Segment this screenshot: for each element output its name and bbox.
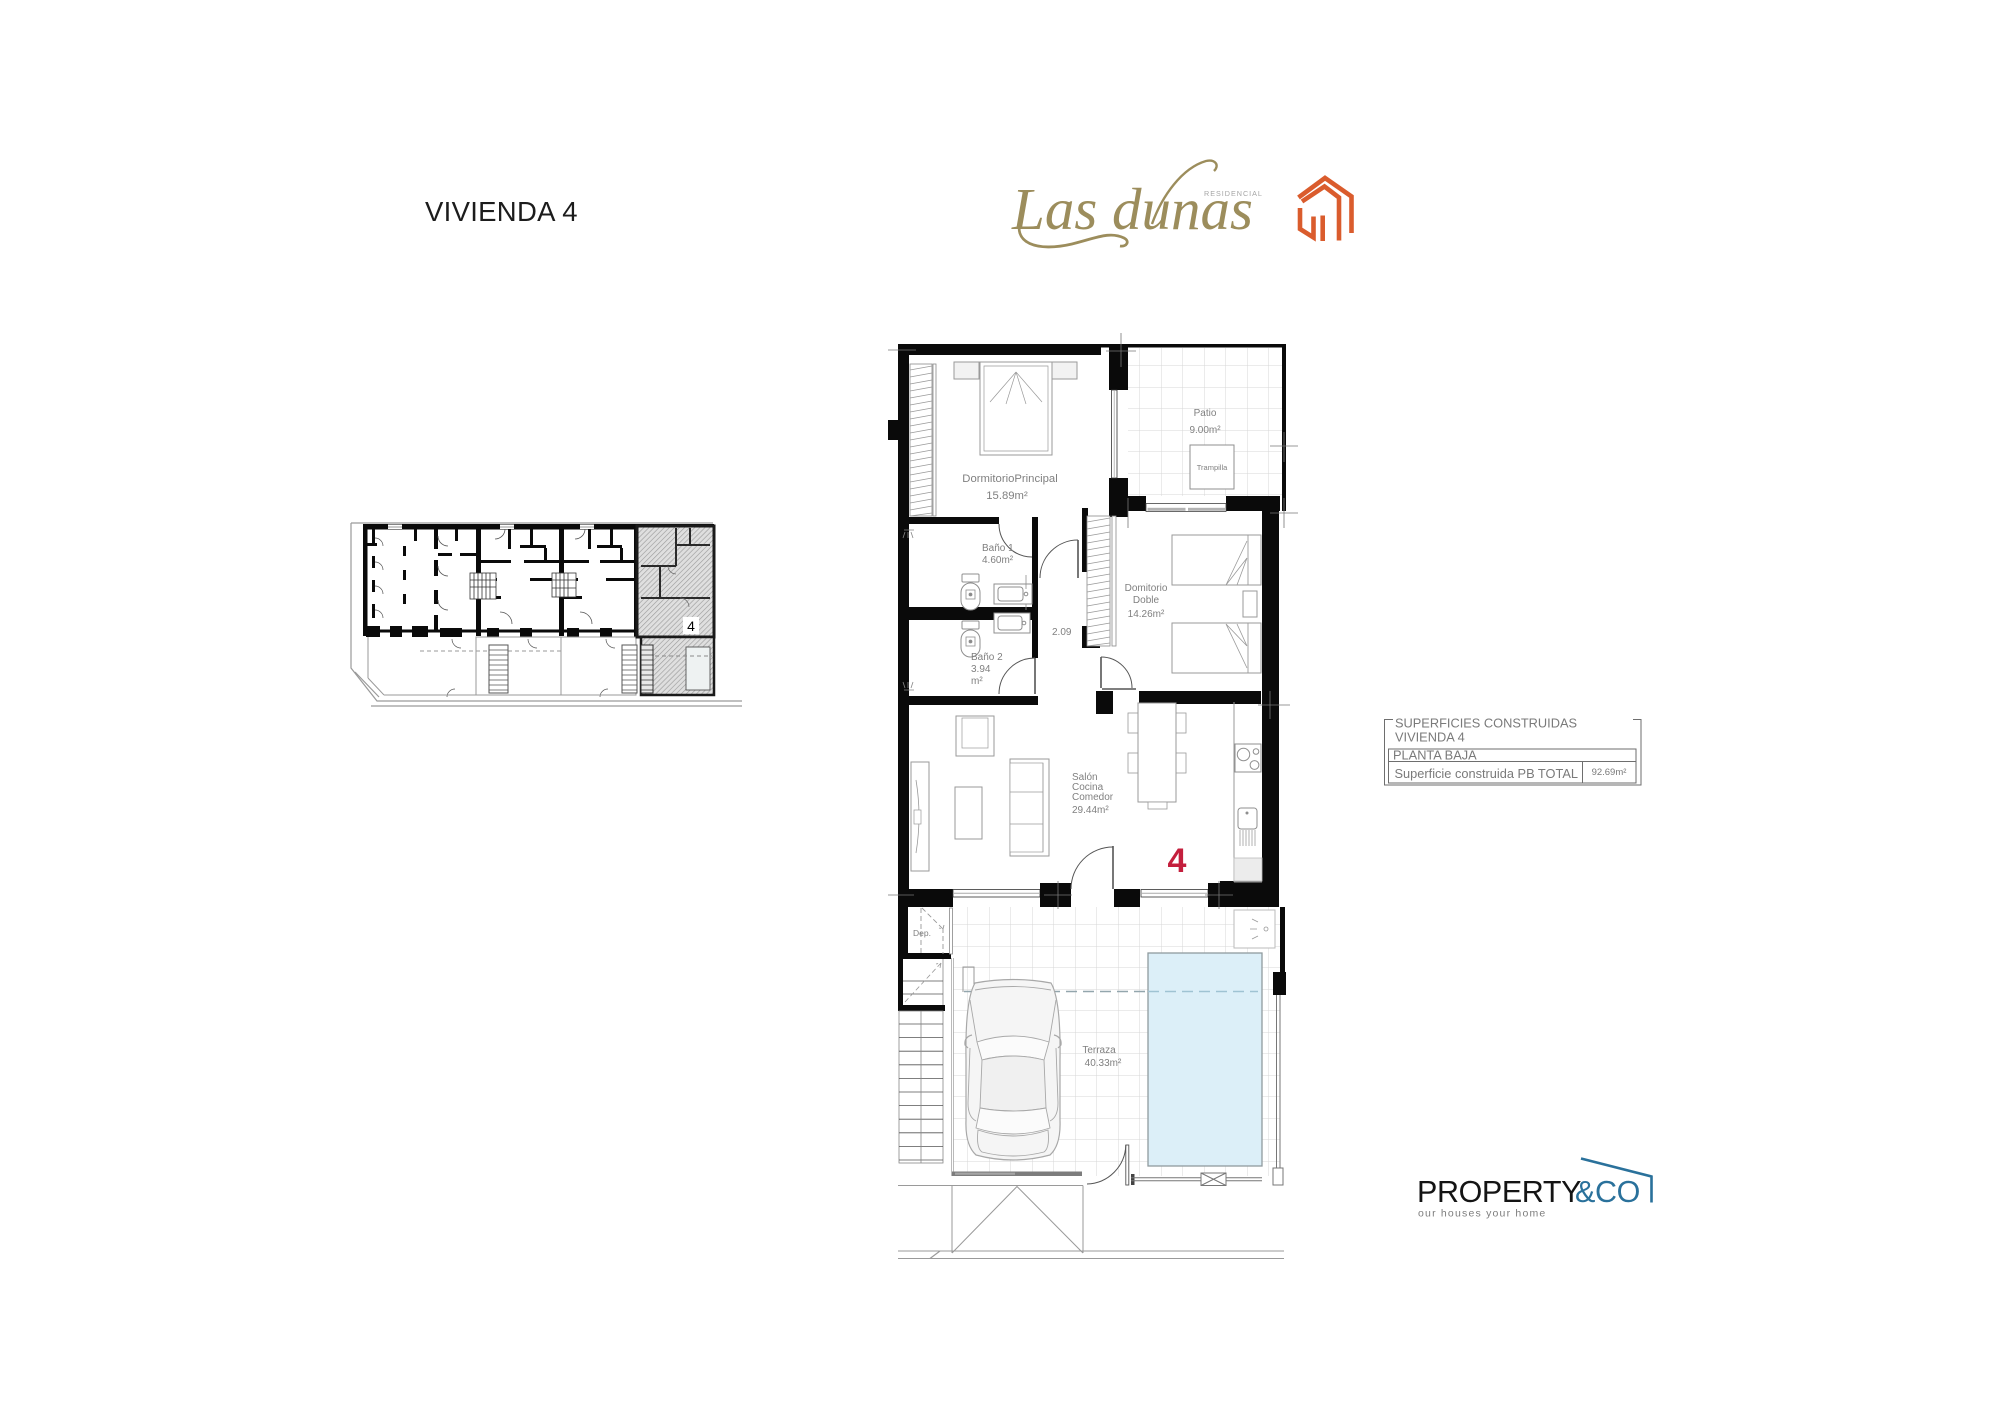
svg-text:Trampilla: Trampilla — [1197, 463, 1228, 472]
svg-text:SUPERFICIES CONSTRUIDAS: SUPERFICIES CONSTRUIDAS — [1395, 716, 1577, 731]
svg-text:PLANTA BAJA: PLANTA BAJA — [1393, 748, 1477, 763]
svg-text:Baño 1: Baño 1 — [982, 543, 1014, 554]
svg-text:VIVIENDA 4: VIVIENDA 4 — [425, 196, 578, 227]
svg-text:Doble: Doble — [1133, 595, 1160, 606]
svg-text:29.44m²: 29.44m² — [1072, 805, 1109, 816]
svg-text:4.60m²: 4.60m² — [982, 555, 1014, 566]
svg-text:4: 4 — [1168, 842, 1187, 880]
svg-text:m²: m² — [971, 676, 983, 687]
svg-text:9.00m²: 9.00m² — [1189, 425, 1221, 436]
svg-text:our houses your home: our houses your home — [1418, 1208, 1546, 1220]
svg-text:92.69m²: 92.69m² — [1592, 767, 1627, 778]
svg-text:&CO: &CO — [1575, 1175, 1640, 1209]
svg-text:Domitorio: Domitorio — [1125, 583, 1168, 594]
svg-text:PROPERTY: PROPERTY — [1417, 1175, 1581, 1209]
svg-text:15.89m²: 15.89m² — [986, 490, 1028, 502]
svg-text:VIVIENDA 4: VIVIENDA 4 — [1395, 730, 1465, 745]
svg-text:3.94: 3.94 — [971, 664, 991, 675]
svg-text:Baño 2: Baño 2 — [971, 652, 1003, 663]
svg-text:Superficie construida PB TOTAL: Superficie construida PB TOTAL — [1394, 766, 1578, 781]
svg-text:40.33m²: 40.33m² — [1085, 1058, 1122, 1069]
svg-text:Terraza: Terraza — [1082, 1045, 1116, 1056]
svg-text:Comedor: Comedor — [1072, 792, 1114, 803]
svg-text:Patio: Patio — [1194, 408, 1217, 419]
svg-text:2.09: 2.09 — [1052, 627, 1072, 638]
svg-text:Las dunas: Las dunas — [1011, 176, 1253, 242]
svg-text:14.26m²: 14.26m² — [1128, 609, 1165, 620]
svg-text:Dep.: Dep. — [913, 928, 931, 938]
svg-text:RESIDENCIAL: RESIDENCIAL — [1204, 189, 1263, 198]
svg-text:DormitorioPrincipal: DormitorioPrincipal — [962, 473, 1057, 485]
svg-text:4: 4 — [687, 618, 695, 634]
